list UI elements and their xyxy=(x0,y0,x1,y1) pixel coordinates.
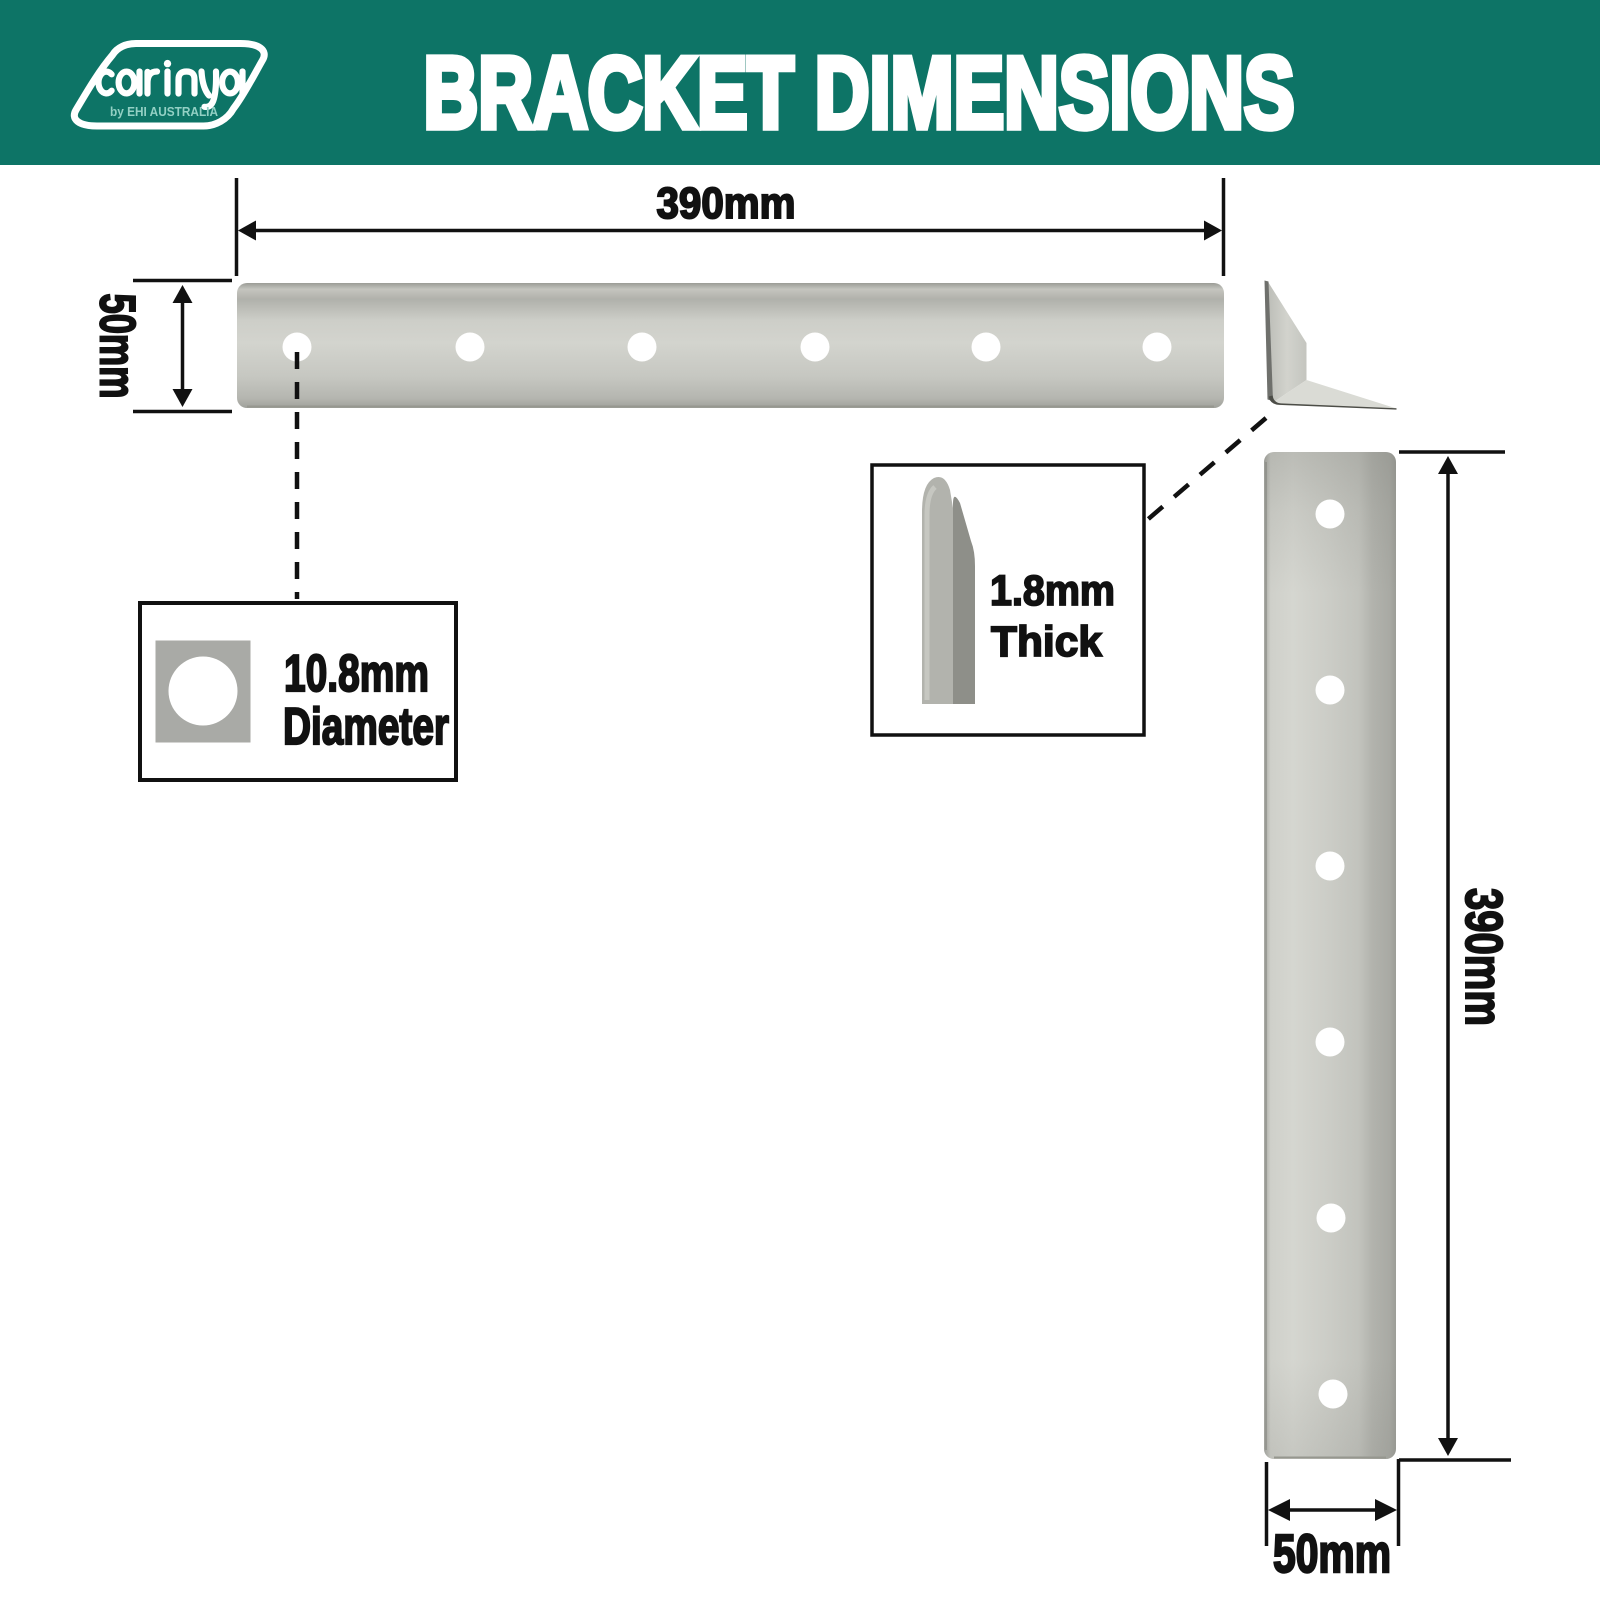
svg-text:BRACKET DIMENSIONS: BRACKET DIMENSIONS xyxy=(424,38,1295,150)
svg-text:50mm: 50mm xyxy=(1273,1524,1391,1584)
svg-text:390mm: 390mm xyxy=(657,179,796,228)
svg-text:390mm: 390mm xyxy=(1454,888,1512,1026)
svg-text:by EHI AUSTRALIA: by EHI AUSTRALIA xyxy=(110,105,218,119)
svg-text:50mm: 50mm xyxy=(90,294,146,399)
svg-text:10.8mm: 10.8mm xyxy=(284,645,429,703)
svg-text:Thick: Thick xyxy=(991,618,1102,666)
svg-text:Diameter: Diameter xyxy=(283,698,449,756)
svg-text:1.8mm: 1.8mm xyxy=(990,567,1115,615)
